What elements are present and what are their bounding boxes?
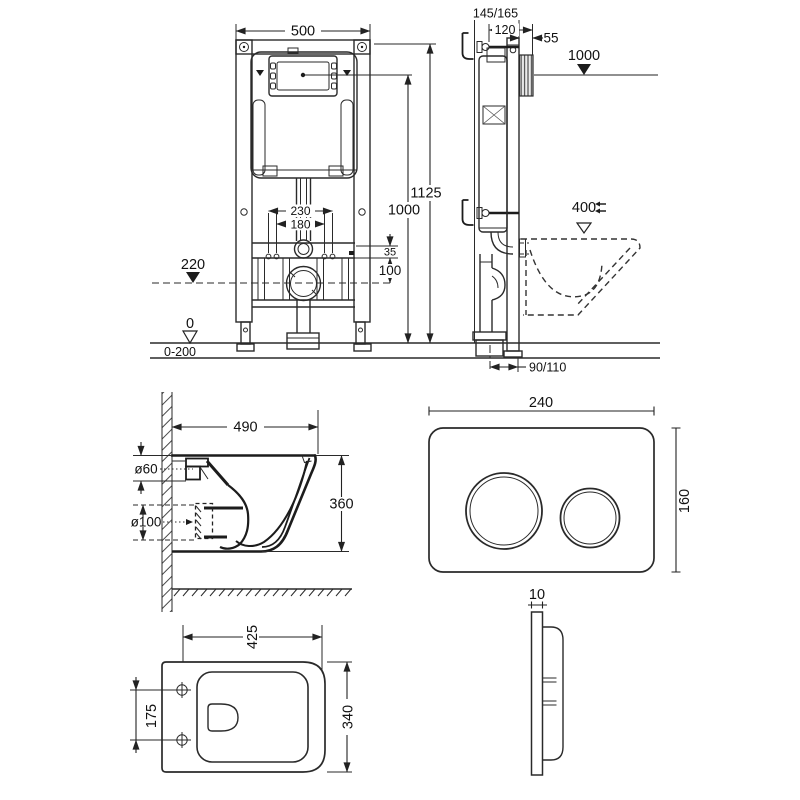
dim-bowl-top-height: 400 xyxy=(572,200,596,216)
drain-elbow xyxy=(287,333,319,349)
dim-rail-offsets-group: 35 100 xyxy=(355,234,406,283)
bowl-outline-top xyxy=(162,662,325,772)
seat-opening xyxy=(197,672,308,762)
dim-outlet-offset-group: 90/110 xyxy=(490,345,566,375)
dim-inlet-diameter: ø60 xyxy=(134,462,157,477)
installation-drawing: 220 0 0-200 500 1125 1000 230 xyxy=(0,0,800,800)
frame-front-view: 220 0 0-200 500 1125 1000 230 xyxy=(152,23,447,359)
dim-plate-height: 160 xyxy=(677,489,693,513)
wall-bracket xyxy=(463,33,520,59)
dim-floor-level: 0 xyxy=(186,316,194,332)
flush-unit-box xyxy=(520,55,534,96)
dim-bowl-top-width: 425 xyxy=(245,625,261,649)
bowl-profile xyxy=(172,456,316,552)
dim-bolt-span-outer: 230 xyxy=(290,204,310,218)
dim-bowl-depth: 490 xyxy=(233,420,257,436)
dim-bolt-span-inner: 180 xyxy=(290,218,310,232)
dim-bowl-height-group: 360 xyxy=(262,456,360,552)
flush-plate-side-view: 10 xyxy=(528,587,563,775)
dim-bowl-top-width-group: 425 xyxy=(183,619,322,672)
level-button-height-group: 1000 xyxy=(534,48,658,75)
dim-drain-offset: 100 xyxy=(379,263,402,278)
cistern-side xyxy=(479,56,507,232)
dim-plate-width-group: 240 xyxy=(429,395,654,416)
dim-depth-range: 145/165 xyxy=(473,7,518,21)
side-bracket xyxy=(341,100,353,175)
floor-lines xyxy=(150,343,660,358)
dim-bowl-height: 360 xyxy=(329,497,353,513)
dim-bowl-top-length-group: 340 xyxy=(327,662,357,772)
dim-front-offset: 55 xyxy=(543,31,558,46)
dim-frame-width: 500 xyxy=(291,24,315,40)
dim-frame-depth: 120 xyxy=(495,23,516,37)
button-housing-side xyxy=(543,627,564,760)
technical-drawing-page: 220 0 0-200 500 1125 1000 230 xyxy=(0,0,800,800)
dim-bolt-spacing: 175 xyxy=(144,704,160,728)
level-bowl-height-group: 400 xyxy=(572,200,606,233)
wall-hatch xyxy=(162,392,172,612)
frame-side-view: 145/165 120 55 1000 400 xyxy=(463,7,659,375)
dim-adjust-range: 0-200 xyxy=(164,345,196,359)
dim-bracket-offset: 35 xyxy=(384,247,396,259)
large-flush-button xyxy=(466,473,542,549)
dim-button-height: 1000 xyxy=(388,203,420,219)
dim-outlet-diameter: ø100 xyxy=(131,515,162,530)
level-marker-open-icon xyxy=(183,331,197,343)
level-marker-filled-icon xyxy=(186,272,200,283)
frame-column xyxy=(507,38,519,351)
dim-total-height-group: 1125 xyxy=(374,44,447,343)
plate-side-profile xyxy=(532,612,543,775)
dim-frame-width-group: 500 xyxy=(236,23,370,40)
dim-outlet-offset: 90/110 xyxy=(529,361,566,375)
drain-outlet xyxy=(287,267,321,301)
dim-plate-thickness: 10 xyxy=(529,587,545,603)
dim-button-height-group: 1000 xyxy=(382,75,426,343)
dim-frame-depth-group: 120 xyxy=(489,23,533,55)
flush-plate xyxy=(429,428,654,572)
flush-button-center-mark xyxy=(301,73,305,77)
wall-bracket xyxy=(463,200,520,225)
dim-side-button-height: 1000 xyxy=(568,48,600,64)
dim-total-height: 1125 xyxy=(410,186,441,202)
bowl-dashed-outline xyxy=(520,239,640,315)
small-flush-button xyxy=(561,489,620,548)
dim-drain-level: 220 xyxy=(181,257,205,273)
side-bracket xyxy=(253,100,265,175)
dim-bowl-depth-group: 490 xyxy=(172,410,318,454)
dim-plate-height-group: 160 xyxy=(672,428,694,572)
bowl-side-view: 490 360 ø60 ø100 xyxy=(131,392,360,612)
dim-bolt-spans-group: 230 180 xyxy=(269,204,333,232)
flush-plate-front-view: 240 160 xyxy=(429,395,693,572)
bowl-top-view: 425 340 175 xyxy=(130,619,357,772)
frame-left-rail xyxy=(236,40,252,322)
flush-outlet-shape xyxy=(208,704,238,731)
dim-plate-width: 240 xyxy=(529,395,553,411)
dim-bowl-top-length: 340 xyxy=(341,705,357,729)
